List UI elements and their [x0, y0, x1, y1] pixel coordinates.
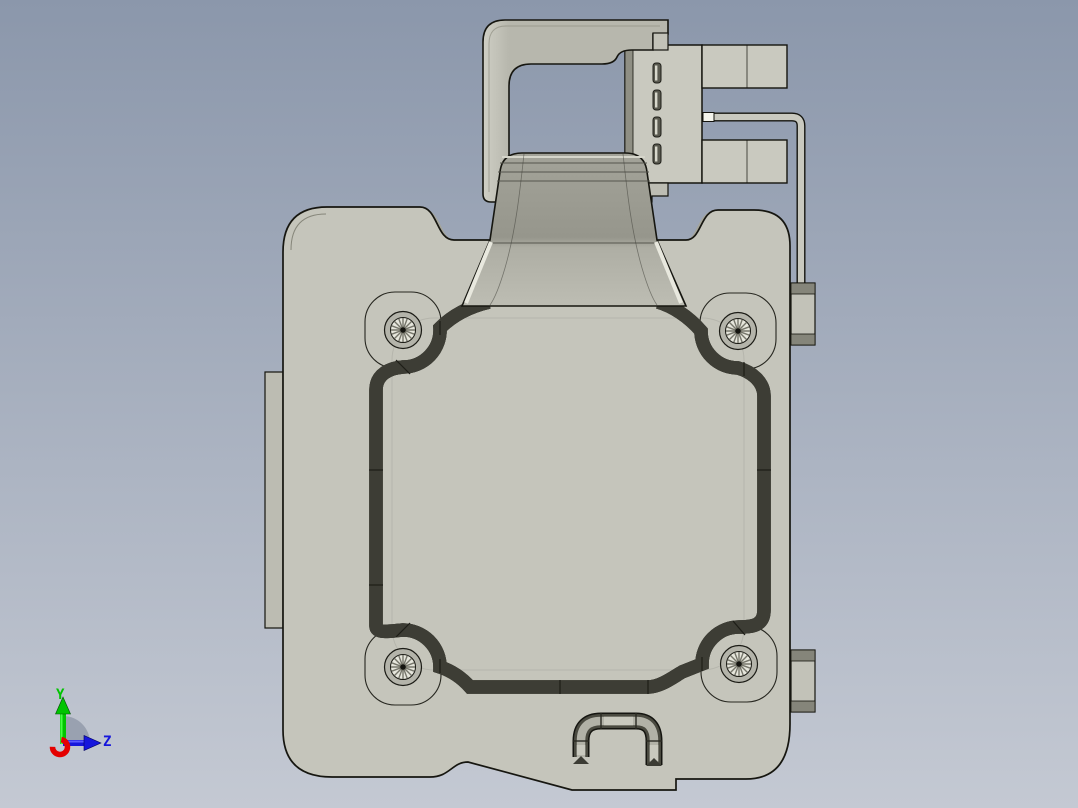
connector-lower-arm[interactable]: [702, 140, 787, 183]
right-upper-tab[interactable]: [791, 283, 815, 345]
torx-screw-bottom-left[interactable]: [385, 649, 422, 686]
pin-slot-highlight: [655, 66, 657, 81]
housing-body[interactable]: [283, 153, 790, 790]
pin-slot-highlight: [655, 147, 657, 162]
viewport-canvas[interactable]: Y Z: [0, 0, 1078, 808]
pin-slot-highlight: [655, 120, 657, 135]
wire-tip: [703, 113, 714, 122]
y-axis-label: Y: [56, 687, 65, 703]
torx-screw-bottom-right[interactable]: [721, 646, 758, 683]
connector-upper-arm[interactable]: [702, 45, 787, 88]
hook-notch-ear: [653, 33, 668, 50]
torx-screw-top-left[interactable]: [385, 312, 422, 349]
pin-slot-highlight: [655, 93, 657, 108]
cad-viewport[interactable]: Y Z: [0, 0, 1078, 808]
torx-screw-top-right[interactable]: [720, 313, 757, 350]
z-axis-label: Z: [103, 734, 111, 750]
left-tab[interactable]: [265, 372, 283, 628]
right-lower-tab[interactable]: [791, 650, 815, 712]
